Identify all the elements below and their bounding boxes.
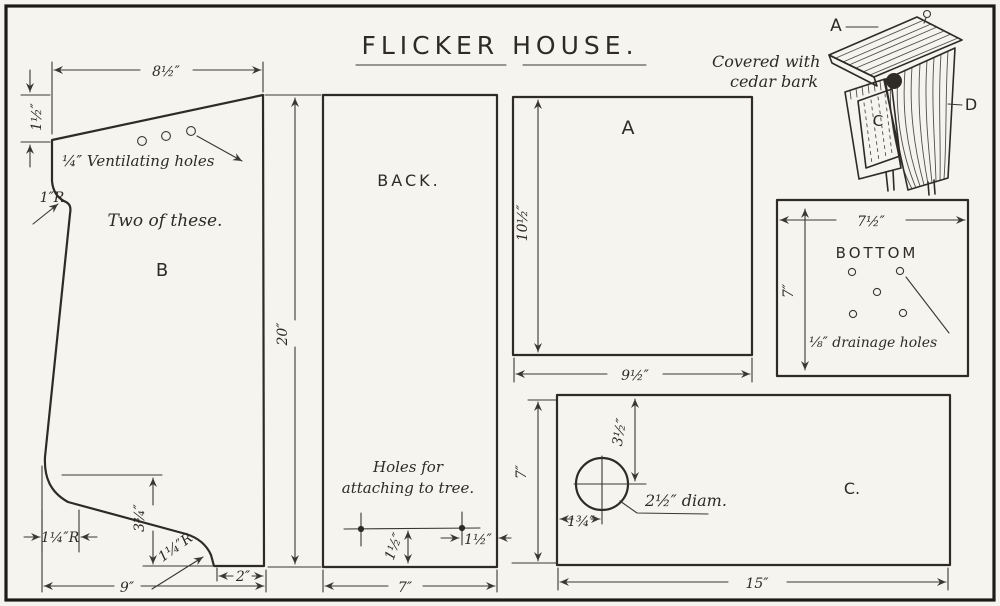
back-panel-label: BACK.: [377, 171, 440, 190]
mount-hole: [459, 525, 465, 531]
hole-offset-h-label: 1½″: [464, 532, 492, 548]
dim-label: 15″: [745, 576, 769, 592]
dim-label: 20″: [275, 322, 291, 347]
sketch-label-a: A: [830, 16, 842, 36]
vent-holes-label: ¼″ Ventilating holes: [62, 152, 215, 170]
dim-label: 9½″: [621, 368, 649, 384]
dim-label: 3¾″: [132, 503, 148, 531]
sketch-label-c: C: [873, 112, 883, 130]
radius-label: 1¼″R: [41, 530, 80, 546]
dim-label: 7″: [514, 464, 530, 479]
dim-label: 9″: [120, 580, 135, 596]
caption-line2: cedar bark: [730, 72, 818, 91]
plan-drawing: FLICKER HOUSE. ¼″ Ventilating holes 1″R …: [0, 0, 1000, 606]
caption-line1: Covered with: [712, 52, 820, 71]
back-note-line1: Holes for: [372, 458, 444, 476]
dim-label: 8½″: [152, 64, 180, 80]
notch-radius-label: 1″R: [40, 190, 65, 206]
hole-from-left-label: 1¾″: [567, 514, 595, 530]
mount-hole: [358, 526, 364, 532]
title-block: FLICKER HOUSE.: [356, 31, 646, 65]
entrance-hole-dark: [886, 73, 902, 89]
page-title: FLICKER HOUSE.: [361, 31, 638, 60]
panel-a-height-label: 10½″: [515, 204, 531, 241]
bottom-width-label: 7½″: [857, 214, 885, 230]
bottom-height-label: 7″: [781, 283, 797, 298]
drain-holes-label: ⅛″ drainage holes: [809, 335, 937, 351]
panel-a-letter: A: [622, 117, 635, 139]
hole-diam-label: 2½″ diam.: [644, 491, 727, 510]
dim-label: 1½″: [29, 102, 45, 130]
bottom-panel-label: BOTTOM: [836, 244, 919, 262]
flicker-house-plan-sheet: FLICKER HOUSE. ¼″ Ventilating holes 1″R …: [0, 0, 1000, 606]
dim-label: 7″: [398, 580, 413, 596]
dim-label: 2″: [235, 569, 251, 585]
back-note-line2: attaching to tree.: [342, 479, 474, 497]
piece-b-letter: B: [156, 260, 168, 281]
sketch-label-d: D: [965, 95, 977, 114]
piece-b-note: Two of these.: [108, 211, 223, 231]
panel-c-letter: C.: [844, 479, 860, 498]
